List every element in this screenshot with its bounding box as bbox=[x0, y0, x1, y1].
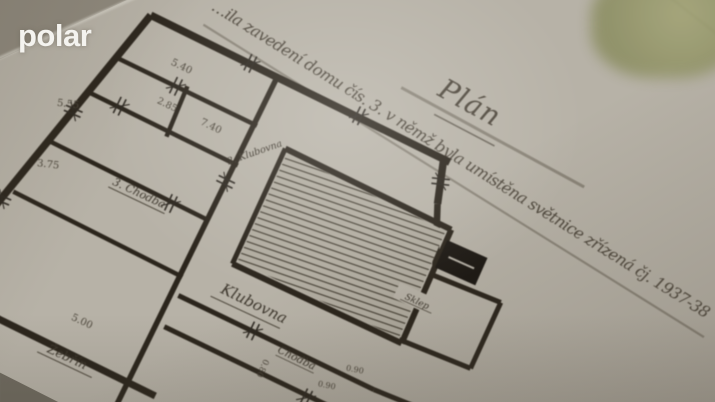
window-mark bbox=[108, 95, 131, 118]
dimension-3-75: 3.75 bbox=[36, 158, 59, 172]
dimension-5-40: 5.40 bbox=[169, 57, 194, 77]
wall-segment bbox=[399, 329, 470, 378]
room-label-zebrin: Žebřín bbox=[44, 341, 89, 373]
room-label-chodba-upper: 3. Chodba bbox=[111, 175, 168, 211]
dimension-7-40: 7.40 bbox=[198, 117, 223, 137]
dimension-2-85: 2.85 bbox=[155, 96, 179, 115]
dimension-5-00: 5.00 bbox=[69, 312, 94, 331]
channel-logo: polar bbox=[18, 18, 91, 54]
window-mark bbox=[214, 170, 237, 193]
room-label-klubovna-small: 2. Klubovna bbox=[225, 138, 284, 167]
window-mark bbox=[242, 319, 265, 342]
video-frame: …ila zavedení domu čís. 3. v němž byla u… bbox=[0, 0, 715, 402]
dimension-0-90-b: 0.90 bbox=[317, 379, 336, 391]
hatched-floor-area bbox=[226, 140, 458, 352]
wall-segment bbox=[464, 303, 508, 369]
dimension-0-90-a: 0.90 bbox=[345, 363, 364, 375]
wall-segment bbox=[0, 273, 155, 402]
dimension-5-55: 5.55 bbox=[56, 98, 79, 112]
wall-segment bbox=[374, 381, 434, 402]
